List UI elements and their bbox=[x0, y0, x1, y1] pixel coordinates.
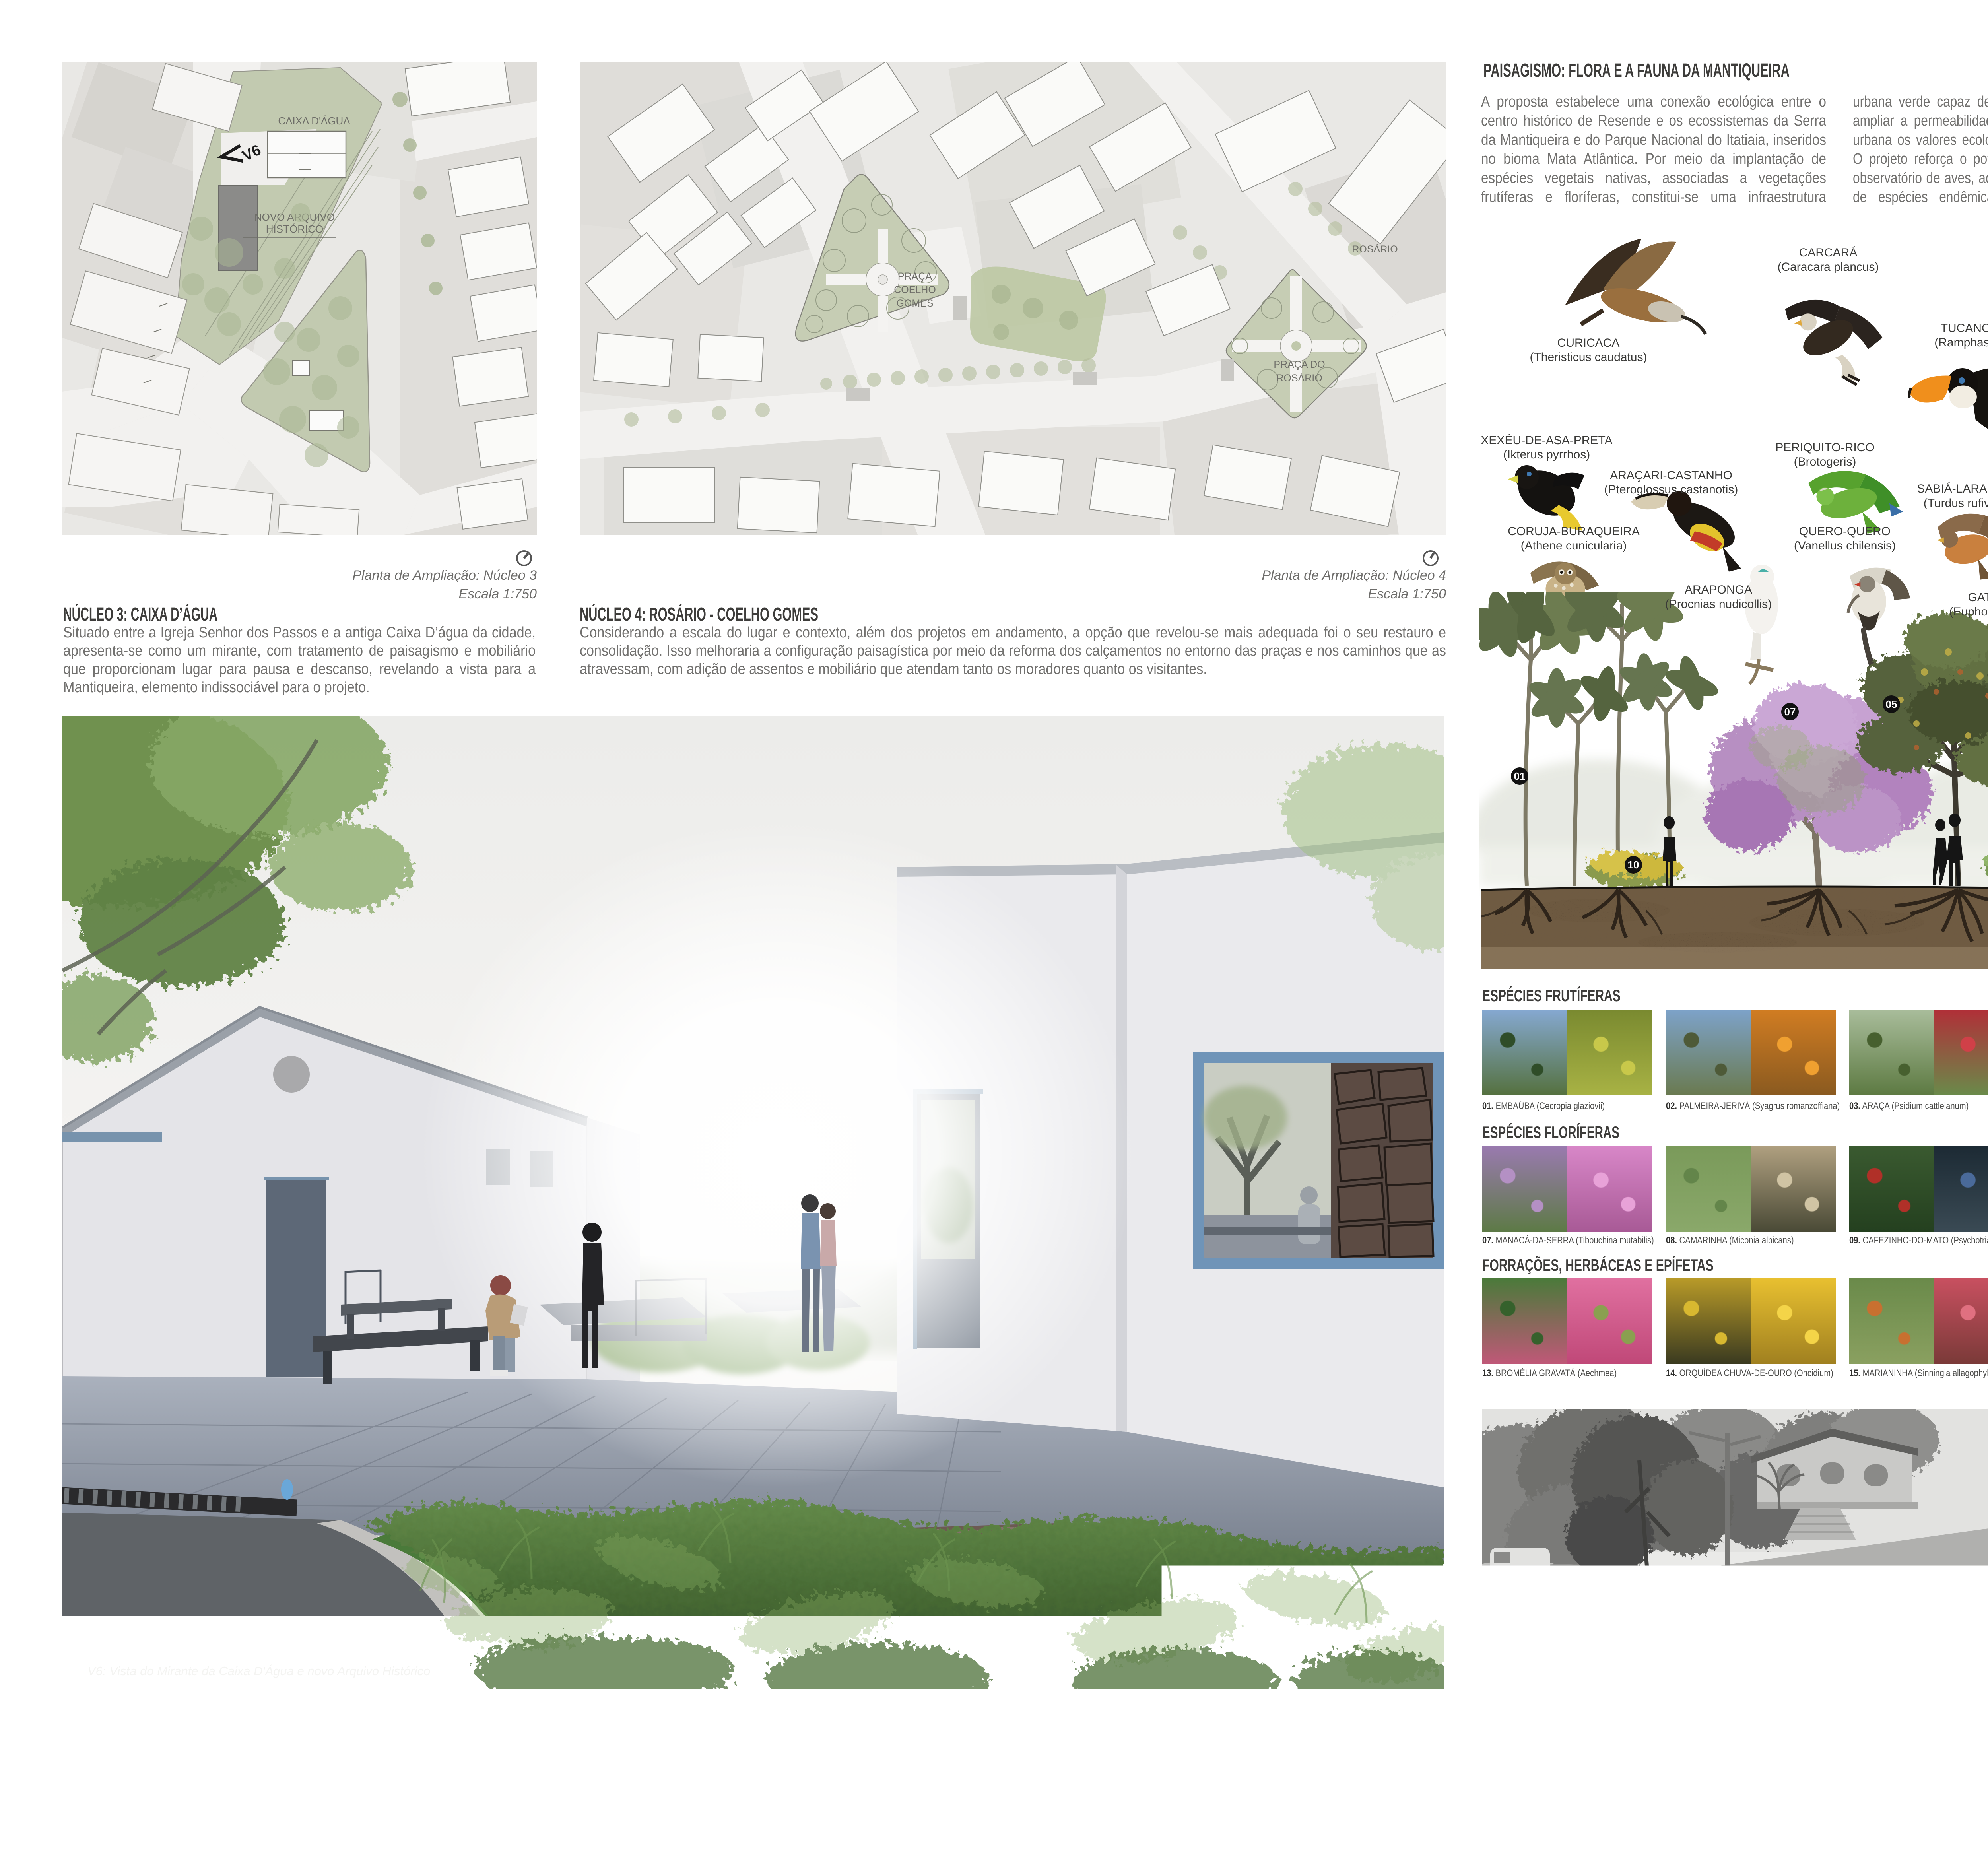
svg-text:PRAÇA DO: PRAÇA DO bbox=[1274, 359, 1325, 370]
svg-text:PRAÇA: PRAÇA bbox=[898, 271, 932, 282]
svg-text:05: 05 bbox=[1886, 698, 1897, 710]
svg-text:RESENDE: RESENDE bbox=[1943, 1831, 1970, 1837]
svg-text:ROSÁRIO: ROSÁRIO bbox=[1276, 372, 1322, 384]
svg-text:GOMES: GOMES bbox=[896, 298, 933, 309]
svg-text:CAIXA D'ÁGUA: CAIXA D'ÁGUA bbox=[278, 115, 350, 127]
svg-text:ROSÁRIO: ROSÁRIO bbox=[1352, 243, 1398, 255]
svg-text:V6: Vista do Mirante da Caixa: V6: Vista do Mirante da Caixa D'Água e n… bbox=[87, 1664, 430, 1678]
svg-text:01: 01 bbox=[1514, 770, 1526, 782]
svg-text:10: 10 bbox=[1628, 859, 1639, 871]
svg-text:Núcleo 3: vista atual: Núcleo 3: vista atual bbox=[1495, 1652, 1606, 1666]
svg-text:HISTÓRICO: HISTÓRICO bbox=[266, 223, 323, 235]
svg-text:COELHO: COELHO bbox=[894, 284, 936, 295]
svg-text:07: 07 bbox=[1784, 706, 1796, 718]
